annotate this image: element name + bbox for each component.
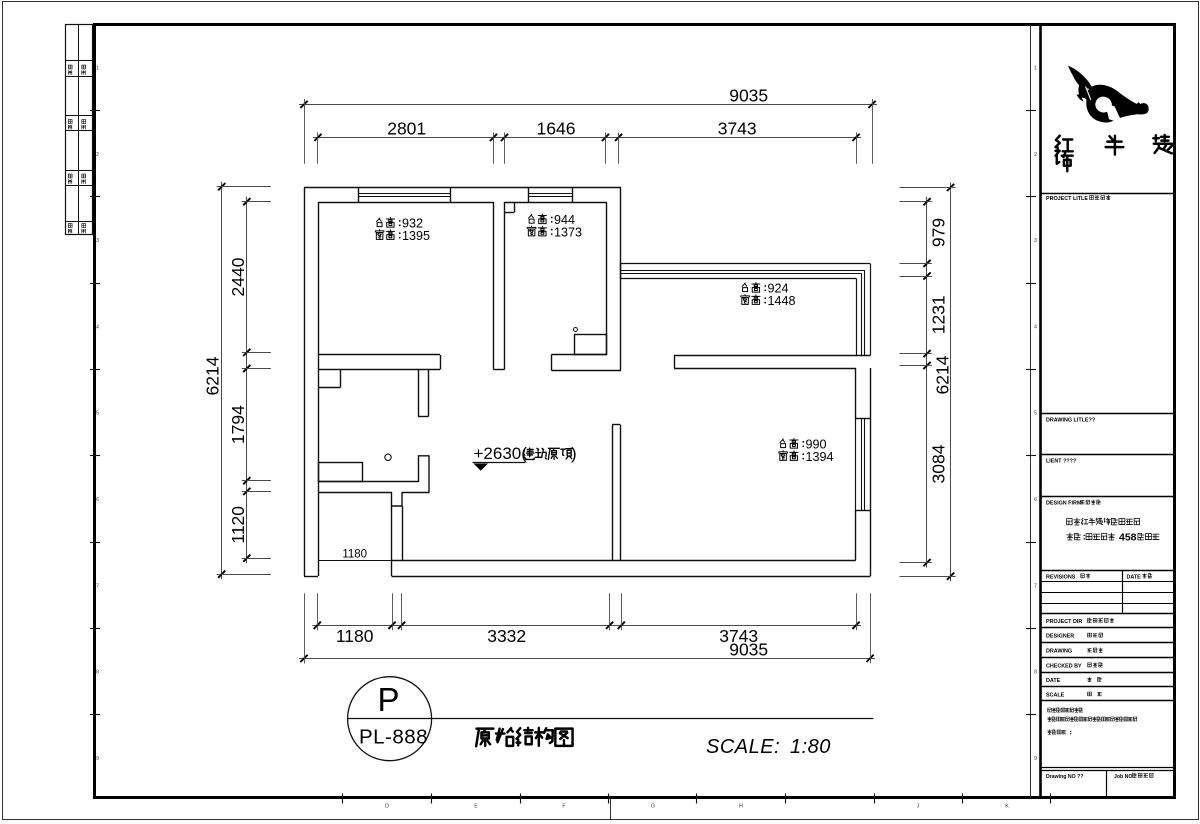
svg-text:PROJECT DIR: PROJECT DIR bbox=[1046, 619, 1082, 625]
svg-text:1373: 1373 bbox=[554, 225, 582, 239]
svg-text:DATE: DATE bbox=[1046, 678, 1061, 684]
svg-text:9: 9 bbox=[1034, 756, 1037, 762]
svg-text:6: 6 bbox=[1034, 497, 1037, 503]
svg-text:5: 5 bbox=[96, 411, 99, 417]
svg-text:SCALE: SCALE bbox=[1046, 692, 1065, 698]
svg-text:LIENT ????: LIENT ???? bbox=[1046, 458, 1076, 464]
svg-text:2801: 2801 bbox=[387, 119, 426, 139]
svg-text:9035: 9035 bbox=[729, 639, 768, 659]
svg-text:1395: 1395 bbox=[402, 229, 430, 243]
svg-text:4: 4 bbox=[96, 324, 99, 330]
svg-text:7: 7 bbox=[96, 583, 99, 589]
svg-text:Drawing NO ??: Drawing NO ?? bbox=[1046, 774, 1083, 780]
svg-text:E: E bbox=[474, 804, 478, 810]
svg-text:1180: 1180 bbox=[342, 549, 367, 561]
svg-text:1394: 1394 bbox=[806, 450, 834, 464]
svg-text:2440: 2440 bbox=[228, 257, 248, 296]
svg-text:DATE: DATE bbox=[1127, 574, 1142, 580]
svg-text:): ) bbox=[571, 444, 577, 463]
svg-text:3332: 3332 bbox=[487, 626, 526, 646]
svg-text:PL-888: PL-888 bbox=[359, 726, 428, 749]
svg-text:458: 458 bbox=[1119, 532, 1137, 544]
svg-text:1231: 1231 bbox=[929, 295, 949, 334]
svg-text:SCALE:: SCALE: bbox=[706, 736, 780, 758]
svg-text:F: F bbox=[562, 804, 565, 810]
svg-text:9035: 9035 bbox=[729, 86, 768, 106]
svg-text:1120: 1120 bbox=[228, 506, 248, 544]
svg-text:5: 5 bbox=[1034, 411, 1037, 417]
svg-text:DESIGN FIRM: DESIGN FIRM bbox=[1046, 501, 1082, 507]
svg-text:G: G bbox=[651, 804, 655, 810]
svg-text:D: D bbox=[385, 804, 389, 810]
svg-text:K: K bbox=[1005, 804, 1009, 810]
svg-text:1: 1 bbox=[1034, 66, 1037, 72]
svg-text:3084: 3084 bbox=[929, 444, 949, 483]
svg-text:+2630(: +2630( bbox=[474, 444, 528, 463]
svg-text:1: 1 bbox=[96, 66, 99, 72]
svg-text:3: 3 bbox=[1034, 238, 1037, 244]
svg-text:DRAWING: DRAWING bbox=[1046, 649, 1072, 655]
svg-text:6214: 6214 bbox=[203, 356, 223, 395]
svg-text:8: 8 bbox=[96, 670, 99, 676]
svg-text:7: 7 bbox=[1034, 583, 1037, 589]
svg-text:4: 4 bbox=[1034, 324, 1037, 330]
svg-text:J: J bbox=[917, 804, 920, 810]
svg-text:1448: 1448 bbox=[768, 294, 796, 308]
svg-text:Job NO: Job NO bbox=[1114, 774, 1132, 780]
svg-text:2: 2 bbox=[1034, 152, 1037, 158]
svg-text:1180: 1180 bbox=[336, 626, 374, 646]
svg-text:DRAWING LITLE??: DRAWING LITLE?? bbox=[1046, 418, 1095, 424]
svg-text:3743: 3743 bbox=[718, 119, 757, 139]
svg-text:REVISIONS: REVISIONS bbox=[1046, 574, 1076, 580]
svg-text:1:80: 1:80 bbox=[790, 736, 831, 758]
svg-text:979: 979 bbox=[929, 218, 949, 247]
svg-text:6: 6 bbox=[96, 497, 99, 503]
svg-text:8: 8 bbox=[1034, 670, 1037, 676]
svg-text:2: 2 bbox=[96, 152, 99, 158]
svg-text:3: 3 bbox=[96, 238, 99, 244]
svg-text:H: H bbox=[739, 804, 743, 810]
svg-text:1794: 1794 bbox=[228, 405, 248, 444]
svg-text:1646: 1646 bbox=[537, 119, 576, 139]
svg-text:6214: 6214 bbox=[932, 355, 952, 394]
svg-text:9: 9 bbox=[96, 756, 99, 762]
svg-text:DESIGNER: DESIGNER bbox=[1046, 634, 1074, 640]
svg-text:CHECKED BY: CHECKED BY bbox=[1046, 663, 1082, 669]
svg-text:P: P bbox=[377, 681, 399, 718]
svg-text:PROJECT LITLE: PROJECT LITLE bbox=[1046, 196, 1088, 202]
